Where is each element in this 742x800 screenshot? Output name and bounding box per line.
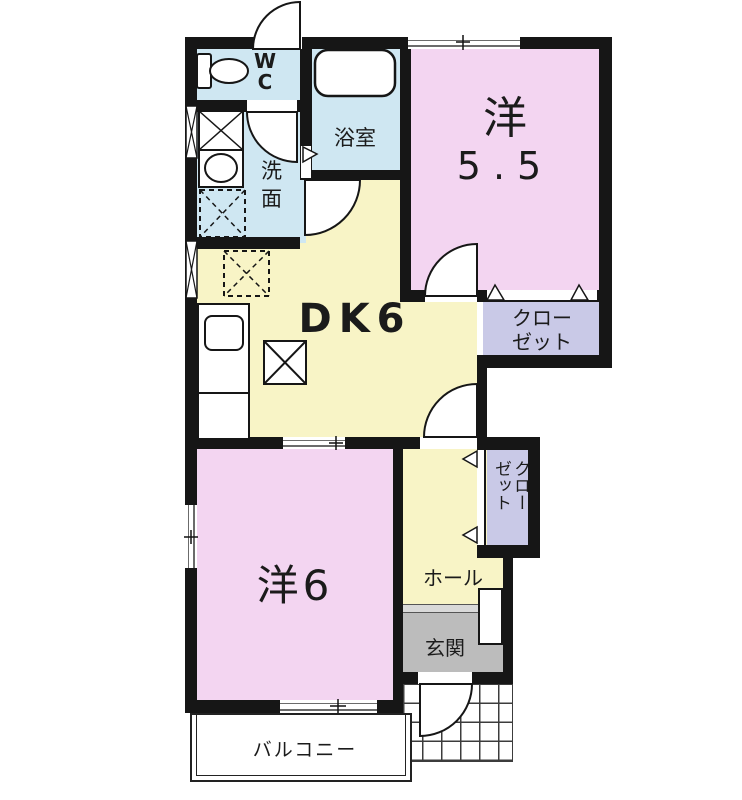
wall-hall-left (393, 437, 403, 713)
room-wc (190, 42, 306, 106)
closet-upper-front-line (487, 300, 597, 302)
window-western55-top (408, 37, 520, 49)
label-bathroom: 浴室 (310, 122, 400, 152)
window-dk-western6 (283, 437, 345, 449)
wall-washroom-bottom (185, 237, 300, 249)
kitchen-counter-divider (199, 392, 248, 394)
label-closet-upper: クロー ゼット (489, 306, 595, 354)
label-closet-upper-line1: クロー (489, 306, 595, 330)
wall-closet-step (477, 355, 612, 368)
label-washroom: 洗面 (258, 157, 285, 213)
label-western-5-5: 洋 5.5 (420, 95, 590, 189)
label-closet-upper-line2: ゼット (489, 330, 595, 354)
wall-right-upper (599, 37, 612, 368)
dk-hall-door-opening (420, 437, 477, 449)
label-closet-lower: クローゼット (489, 454, 529, 516)
label-wc: WC (251, 51, 279, 93)
wall-right-lower (503, 548, 513, 687)
floor-plan: WC 浴室 洗面 洋 5.5 DK6 クロー ゼット クローゼット 洋6 ホール… (0, 0, 742, 800)
room-washroom (190, 106, 306, 243)
room-bathroom (306, 42, 405, 175)
entrance-door-opening (418, 672, 472, 684)
label-dk: DK6 (270, 296, 440, 342)
closet-lower-front-line (484, 450, 486, 545)
wc-exterior-door-opening (255, 37, 302, 49)
room-dk-under-bath (306, 175, 400, 243)
wall-top (185, 37, 612, 49)
wc-door-opening (247, 100, 297, 112)
label-western-5-5-name: 洋 (420, 95, 590, 143)
label-western-5-5-size: 5.5 (420, 143, 590, 189)
label-entrance: 玄関 (403, 632, 487, 661)
label-hall: ホール (405, 562, 501, 591)
wall-dk-right (477, 355, 487, 450)
label-balcony: バルコニー (225, 735, 385, 762)
window-western6-left (185, 505, 197, 568)
window-western6-balcony (280, 700, 377, 713)
entrance-porch-tiles (403, 684, 513, 762)
label-western-6: 洋6 (210, 552, 380, 613)
wall-left (185, 37, 197, 713)
wall-western55-left (400, 37, 411, 302)
kitchen-counter (197, 303, 250, 440)
wall-bath-bottom (300, 170, 400, 180)
